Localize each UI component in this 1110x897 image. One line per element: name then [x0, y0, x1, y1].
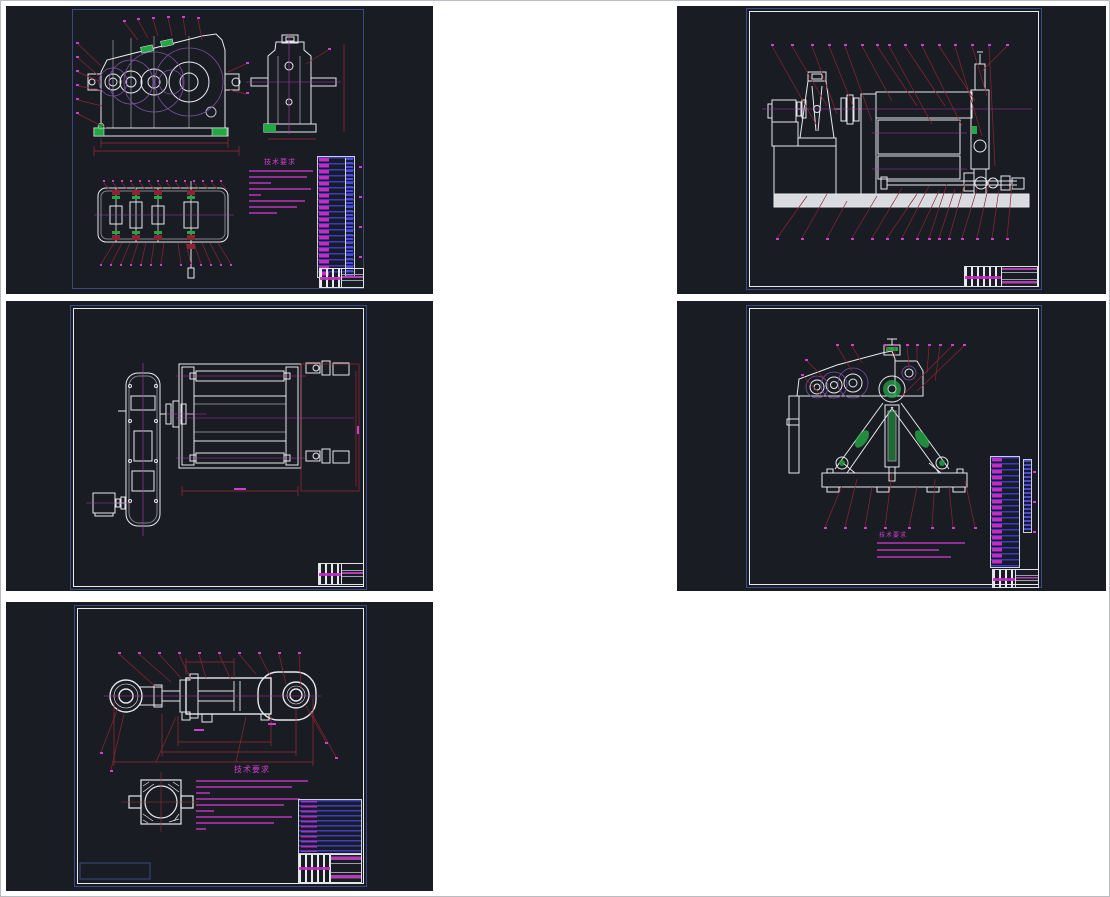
- gear-reducer-drawing: [6, 6, 433, 294]
- panel-gear-reducer-assembly: 技术要求: [6, 6, 433, 294]
- title-block-grid: [330, 855, 362, 882]
- title-block-grid: [1001, 267, 1038, 286]
- title-block: [992, 569, 1039, 588]
- title-block-bars: [299, 855, 330, 882]
- motor-and-pedestal: [768, 100, 836, 194]
- tech-notes-heading: 技术要求: [234, 766, 270, 774]
- tech-notes-heading: 技术要求: [264, 159, 296, 167]
- green-fittings: [972, 126, 977, 134]
- frame-revision-box: [80, 863, 150, 879]
- title-block-bars: [993, 570, 1015, 587]
- parts-list-table: [990, 456, 1020, 568]
- balloon-numbers: [771, 45, 1009, 239]
- center-cylinder: [885, 405, 899, 481]
- parts-list-highlight-column: [319, 158, 329, 276]
- title-block-grid: [341, 269, 363, 287]
- machine-top-view-drawing: [6, 301, 433, 591]
- machine-assembly-drawing: [677, 6, 1106, 294]
- side-view-centerlines: [246, 34, 341, 134]
- cad-preview-collage: 技术要求: [0, 0, 1110, 897]
- leader-lines: [101, 654, 336, 770]
- title-block-bars: [319, 564, 341, 584]
- parts-list-highlight-column: [301, 801, 317, 852]
- base-plate: [774, 194, 1029, 207]
- cross-section-centerlines: [121, 772, 199, 832]
- front-view: [88, 34, 240, 136]
- side-view-green-pad: [264, 124, 276, 132]
- bottom-drive-shaft: [881, 173, 1024, 191]
- panel-hydraulic-cylinder: 技术要求: [6, 602, 433, 891]
- parts-list-table: [298, 799, 362, 854]
- panel-machine-assembly: [677, 6, 1106, 294]
- parts-list-highlight-column: [992, 458, 1002, 566]
- hydraulic-cylinder-drawing: [6, 602, 433, 891]
- front-view-phantom-gears: [99, 48, 223, 116]
- title-block-grid: [341, 564, 364, 584]
- parts-list-vertical-text: [1023, 459, 1032, 533]
- section-view: [98, 181, 228, 278]
- section-view-bearings-red: [112, 190, 195, 249]
- side-view: [251, 35, 336, 132]
- balloon-numbers: [100, 653, 338, 771]
- panel-machine-top-view: [6, 301, 433, 591]
- panel-frame-section: 技术要求: [677, 301, 1106, 591]
- parts-list-table: [317, 156, 355, 278]
- title-block: [318, 563, 364, 585]
- balloon-numbers: [76, 17, 331, 265]
- title-block-bars: [965, 267, 1001, 286]
- dimension-text: [234, 426, 358, 489]
- dimension-lines: [182, 364, 359, 496]
- motor-top-view: [93, 493, 126, 516]
- title-block: [298, 854, 362, 883]
- dimension-lines: [114, 658, 313, 766]
- title-block-bars: [320, 269, 341, 287]
- parts-list-vertical-text: [345, 158, 353, 276]
- title-block: [319, 268, 364, 288]
- roller-frame-top-view: [179, 364, 301, 468]
- title-block: [964, 266, 1038, 287]
- coupling: [834, 95, 861, 124]
- title-block-grid: [1015, 570, 1038, 587]
- frame-section-drawing: [677, 301, 1106, 591]
- right-side-components: [306, 361, 349, 463]
- tech-notes-heading: 技术要求: [879, 532, 907, 540]
